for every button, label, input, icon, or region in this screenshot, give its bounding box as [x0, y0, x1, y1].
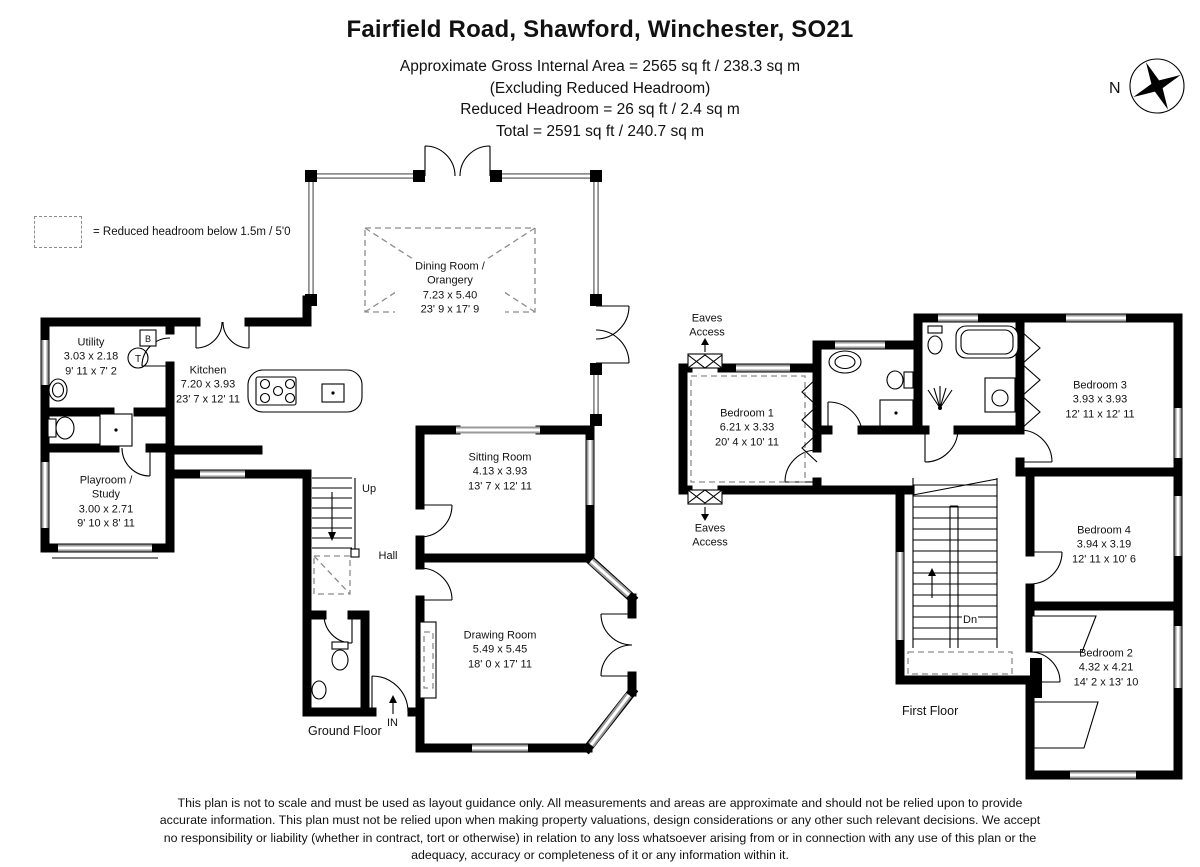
ensuite-fixtures [829, 351, 913, 426]
room-dims-metric: 3.00 x 2.71 [65, 502, 147, 516]
room-name: Bedroom 1 [697, 407, 797, 421]
room-dims-metric: 3.03 x 2.18 [56, 350, 126, 364]
stairs-down-label: Dn [962, 614, 978, 626]
shower-icon [100, 414, 132, 446]
room-label-dining-orangery: Dining Room / Orangery 7.23 x 5.40 23' 9… [395, 258, 505, 317]
room-dims-imperial: 23' 9 x 17' 9 [397, 302, 503, 316]
room-label-drawing-room: Drawing Room 5.49 x 5.45 18' 0 x 17' 11 [445, 629, 555, 672]
room-label-playroom-study: Playroom / Study 3.00 x 2.71 9' 10 x 8' … [65, 473, 147, 530]
room-dims-metric: 6.21 x 3.33 [697, 421, 797, 435]
room-label-bedroom-3: Bedroom 3 3.93 x 3.93 12' 11 x 12' 11 [1045, 379, 1155, 422]
room-name: Bedroom 3 [1045, 379, 1155, 393]
room-dims-metric: 7.23 x 5.40 [397, 288, 503, 302]
room-dims-metric: 4.13 x 3.93 [445, 465, 555, 479]
room-name: Sitting Room [445, 451, 555, 465]
eaves-access-label-bottom: Eaves Access [685, 522, 735, 551]
room-dims-imperial: 12' 11 x 10' 6 [1049, 552, 1159, 566]
disclaimer-text: This plan is not to scale and must be us… [158, 795, 1042, 864]
toilet-icon [48, 417, 74, 439]
room-dims-imperial: 23' 7 x 12' 11 [162, 392, 254, 406]
room-dims-imperial: 13' 7 x 12' 11 [445, 479, 555, 493]
first-floor-label: First Floor [902, 704, 958, 718]
stairs-up [312, 478, 359, 594]
shower-icon [880, 400, 913, 426]
eaves-hatch-icon [688, 490, 722, 521]
sink-icon [829, 351, 861, 373]
kitchen-island [248, 370, 362, 412]
room-label-utility: Utility 3.03 x 2.18 9' 11 x 7' 2 [56, 336, 126, 379]
toilet-icon [332, 642, 348, 670]
room-name: Kitchen [162, 364, 254, 378]
room-dims-metric: 7.20 x 3.93 [162, 378, 254, 392]
room-name: Bedroom 2 [1051, 647, 1161, 661]
eaves-access-label-top: Eaves Access [682, 312, 732, 341]
room-name: Playroom / Study [65, 473, 147, 502]
sink-icon [49, 379, 67, 401]
toilet-icon [928, 326, 942, 354]
room-name: Bedroom 4 [1049, 524, 1159, 538]
room-name: Utility [56, 336, 126, 350]
room-dims-metric: 3.93 x 3.93 [1045, 393, 1155, 407]
chimney-breast [1030, 658, 1042, 698]
ground-floor-label: Ground Floor [308, 724, 382, 738]
room-label-kitchen: Kitchen 7.20 x 3.93 23' 7 x 12' 11 [162, 364, 254, 407]
fireplace-icon [420, 622, 436, 698]
room-dims-imperial: 18' 0 x 17' 11 [445, 657, 555, 671]
room-dims-imperial: 20' 4 x 10' 11 [697, 435, 797, 449]
room-name: Drawing Room [445, 629, 555, 643]
bay-window-icon [52, 552, 158, 558]
room-label-hall: Hall [368, 549, 408, 563]
room-dims-imperial: 9' 10 x 8' 11 [65, 516, 147, 530]
room-label-bedroom-2: Bedroom 2 4.32 x 4.21 14' 2 x 13' 10 [1051, 647, 1161, 690]
room-label-bedroom-1: Bedroom 1 6.21 x 3.33 20' 4 x 10' 11 [697, 407, 797, 450]
shower-spray-icon [928, 386, 952, 410]
room-dims-imperial: 14' 2 x 13' 10 [1051, 675, 1161, 689]
room-name: Hall [368, 549, 408, 563]
sink-icon [985, 378, 1015, 412]
toilet-icon [887, 371, 913, 389]
room-dims-metric: 5.49 x 5.45 [445, 643, 555, 657]
stairs-up-label: Up [362, 483, 376, 495]
bathroom-fixtures [928, 326, 1018, 412]
stairs-down [913, 478, 997, 648]
eaves-hatch-icon [688, 338, 722, 368]
cloakroom-fixtures [312, 642, 348, 699]
room-name: Dining Room / Orangery [397, 259, 503, 288]
room-dims-metric: 4.32 x 4.21 [1051, 661, 1161, 675]
boiler-label: B [145, 334, 151, 344]
bath-icon [956, 326, 1018, 358]
tank-label: T [135, 354, 141, 365]
room-dims-metric: 3.94 x 3.19 [1049, 538, 1159, 552]
first-floor-doors [785, 402, 1062, 682]
floorplan-page: { "header": { "title": "Fairfield Road, … [0, 0, 1200, 867]
room-label-bedroom-4: Bedroom 4 3.94 x 3.19 12' 11 x 10' 6 [1049, 524, 1159, 567]
wardrobe-icon [1022, 332, 1040, 428]
room-dims-imperial: 9' 11 x 7' 2 [56, 364, 126, 378]
entrance-in-label: IN [387, 717, 398, 729]
floorplan-drawing: T B [0, 0, 1200, 867]
sink-icon [312, 681, 326, 699]
landing-reduced-headroom [908, 652, 1012, 674]
entrance-arrow-icon [389, 695, 397, 714]
room-dims-imperial: 12' 11 x 12' 11 [1045, 407, 1155, 421]
room-label-sitting-room: Sitting Room 4.13 x 3.93 13' 7 x 12' 11 [445, 451, 555, 494]
